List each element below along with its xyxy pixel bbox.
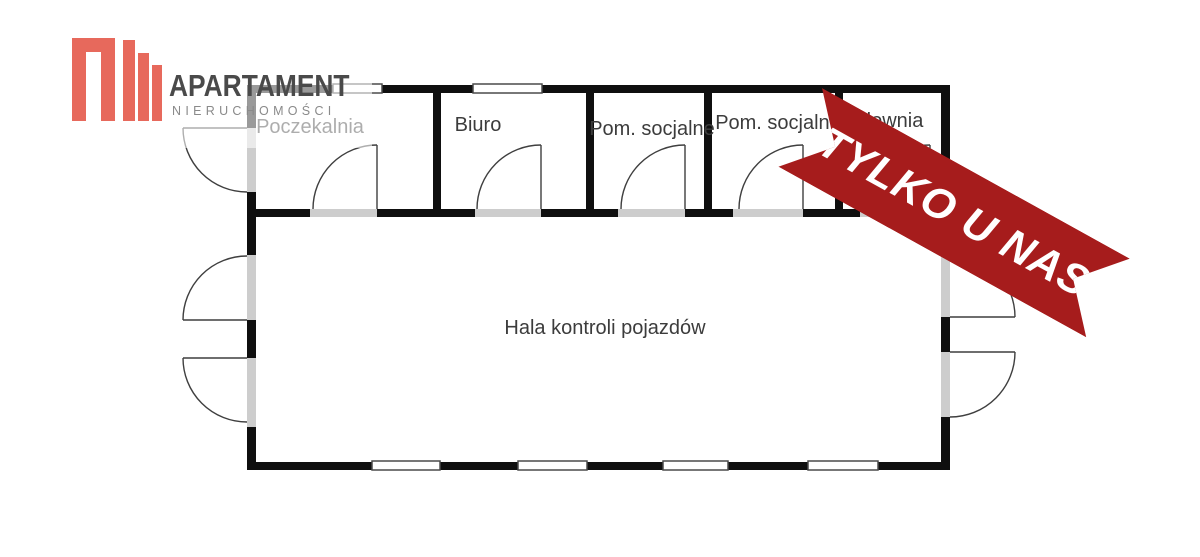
listing-poster: Poczekalnia Biuro Pom. socjalne Pom. soc… [0,0,1200,557]
room-label-hala-kontroli-pojazdow: Hala kontroli pojazdów [504,317,705,340]
brand-logo: APARTAMENT NIERUCHOMOŚCI [72,38,372,128]
room-label-biuro: Biuro [455,114,502,137]
windows [333,84,878,470]
room-label-pom-socjalne-2: Pom. socjalne [715,112,841,135]
brand-name: APARTAMENT [169,70,350,101]
brand-subtitle: NIERUCHOMOŚCI [172,105,336,118]
buildings-icon [72,38,167,122]
room-label-pom-socjalne-1: Pom. socjalne [589,118,715,141]
